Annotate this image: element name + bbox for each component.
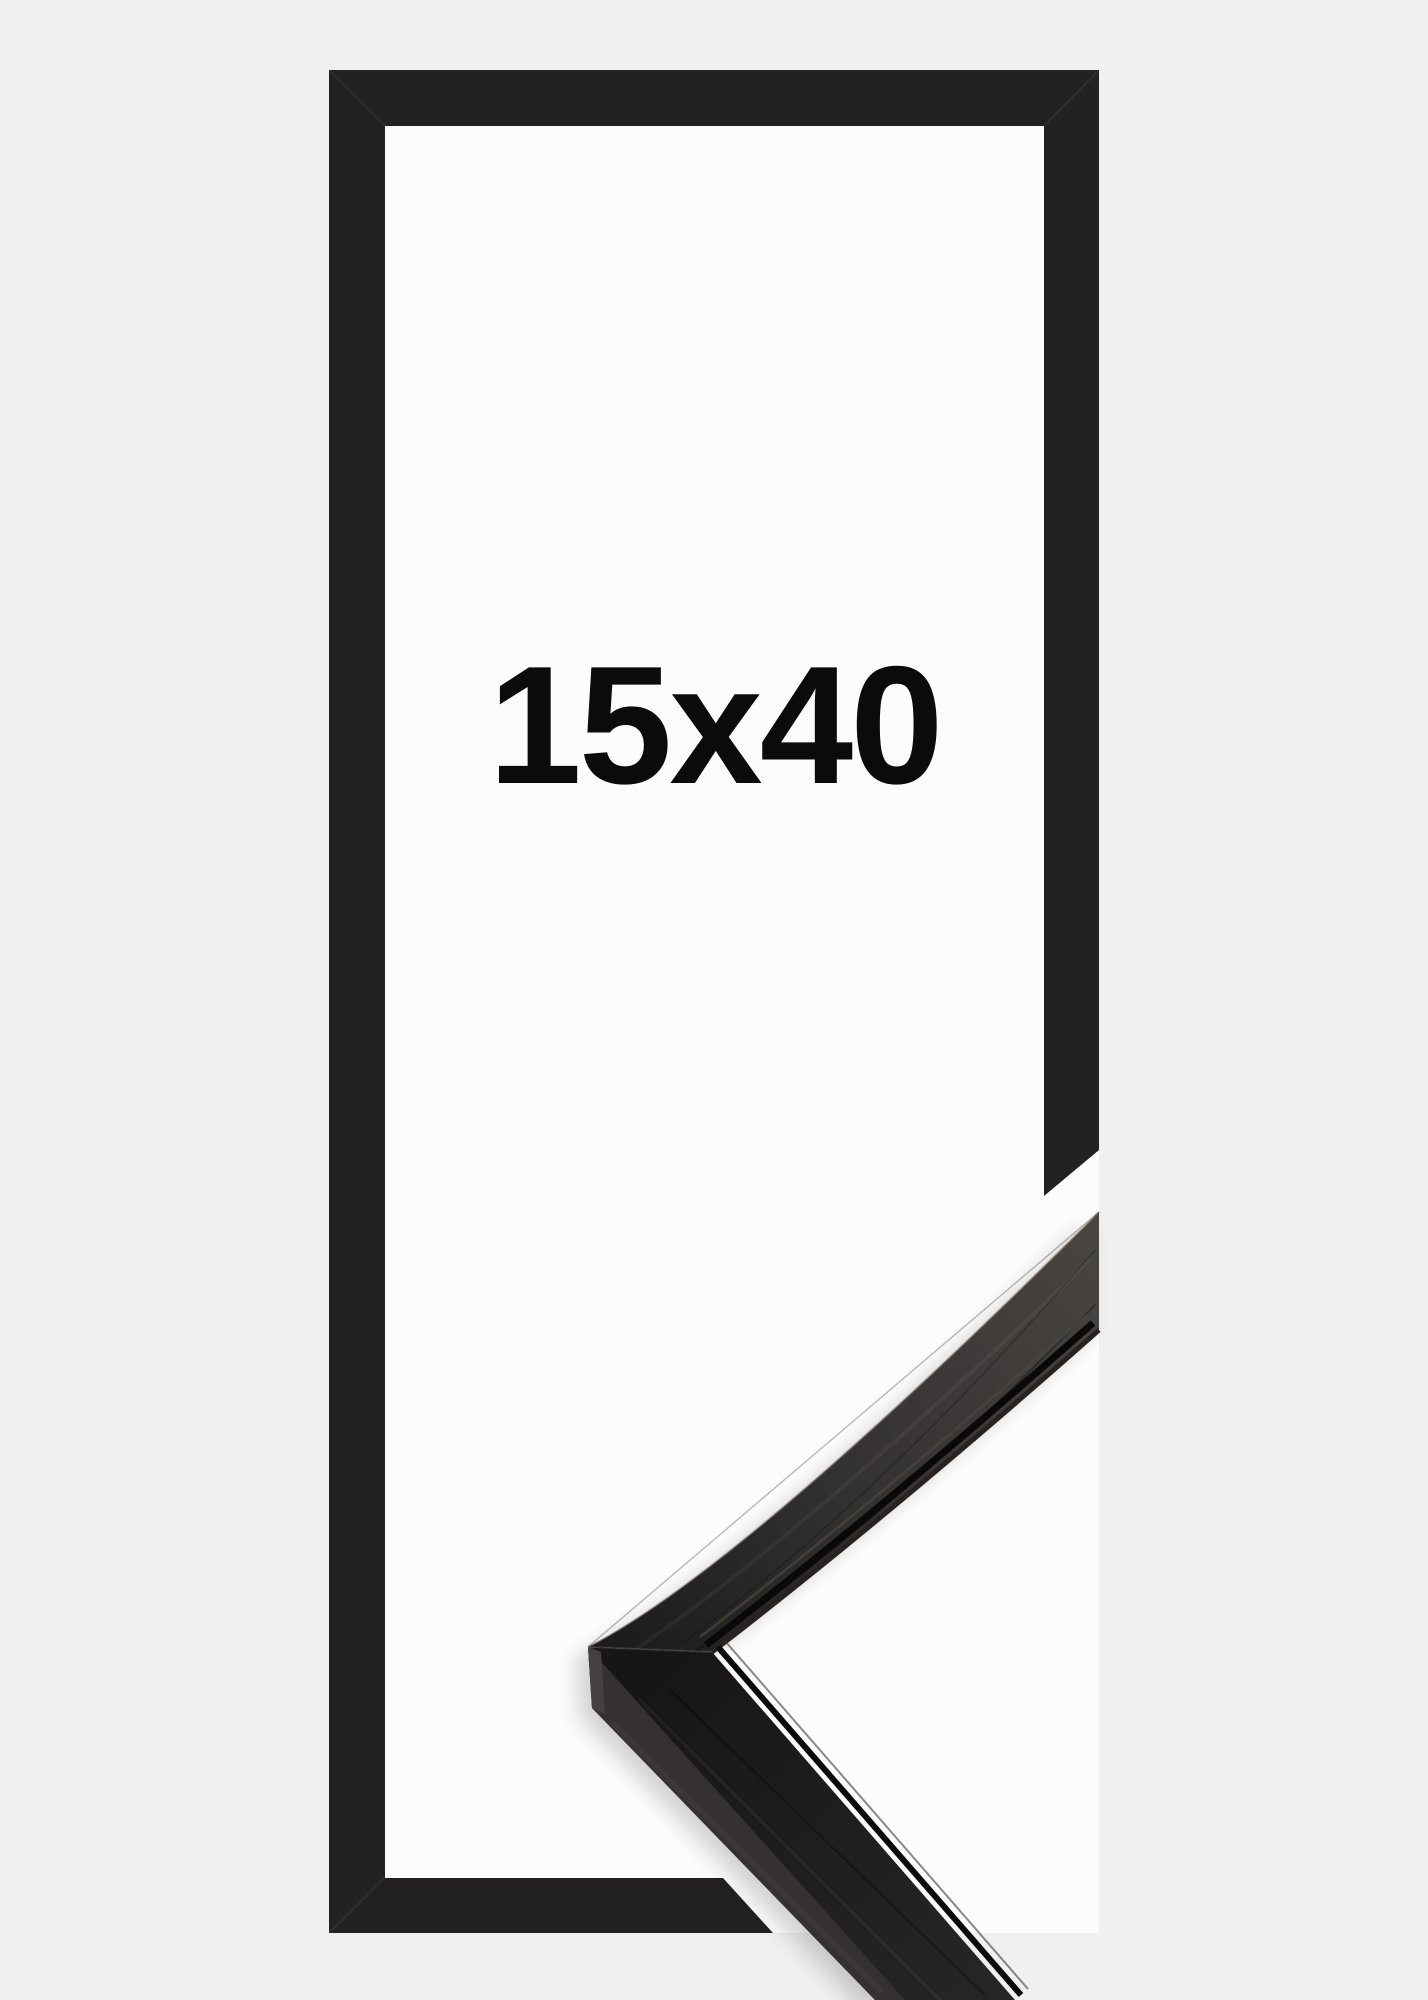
size-label: 15x40 <box>385 600 1044 850</box>
frame-product-graphic <box>0 0 1428 2000</box>
frame-outline-bottom-bar <box>329 1878 773 1933</box>
frame-outline-left-bar <box>329 70 385 1933</box>
frame-outline-top-bar <box>329 70 1099 126</box>
frame-outline-right-bar <box>1044 70 1099 1196</box>
frame-product-image: 15x40 <box>0 0 1428 2000</box>
